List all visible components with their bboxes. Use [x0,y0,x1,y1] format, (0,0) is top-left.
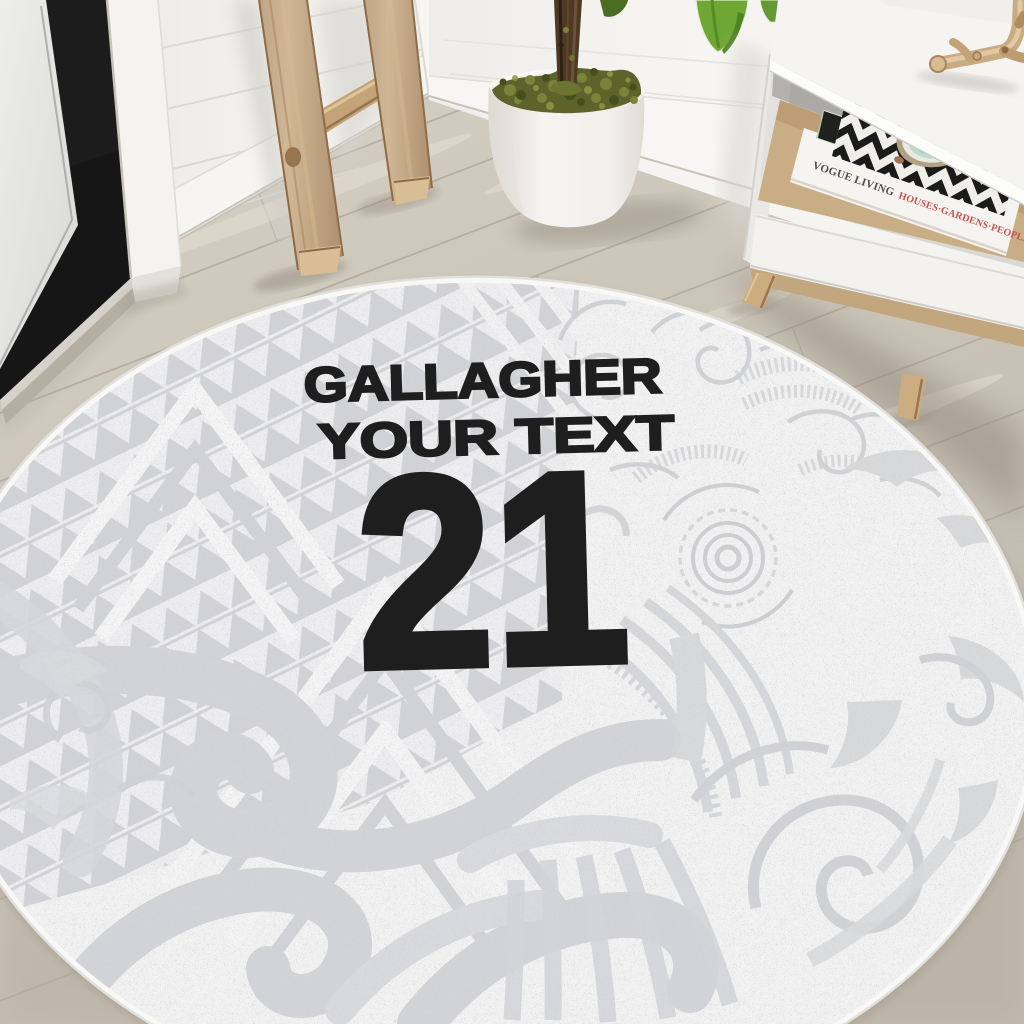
svg-text:GALLAGHER: GALLAGHER [303,349,662,412]
svg-text:21: 21 [353,414,633,725]
